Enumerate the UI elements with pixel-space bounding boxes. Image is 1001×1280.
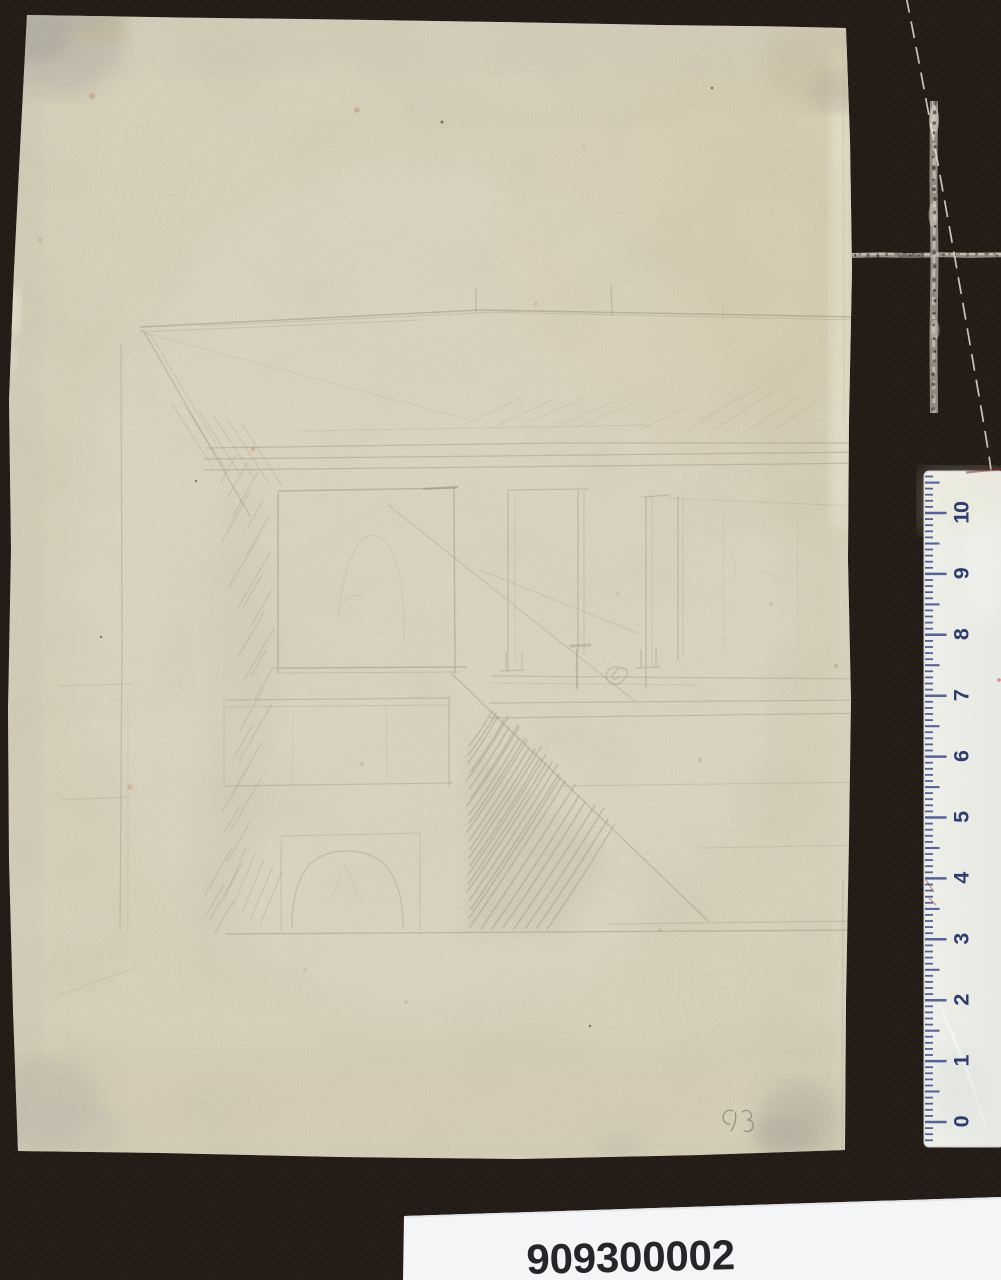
svg-text:909300002: 909300002 xyxy=(526,1231,735,1280)
